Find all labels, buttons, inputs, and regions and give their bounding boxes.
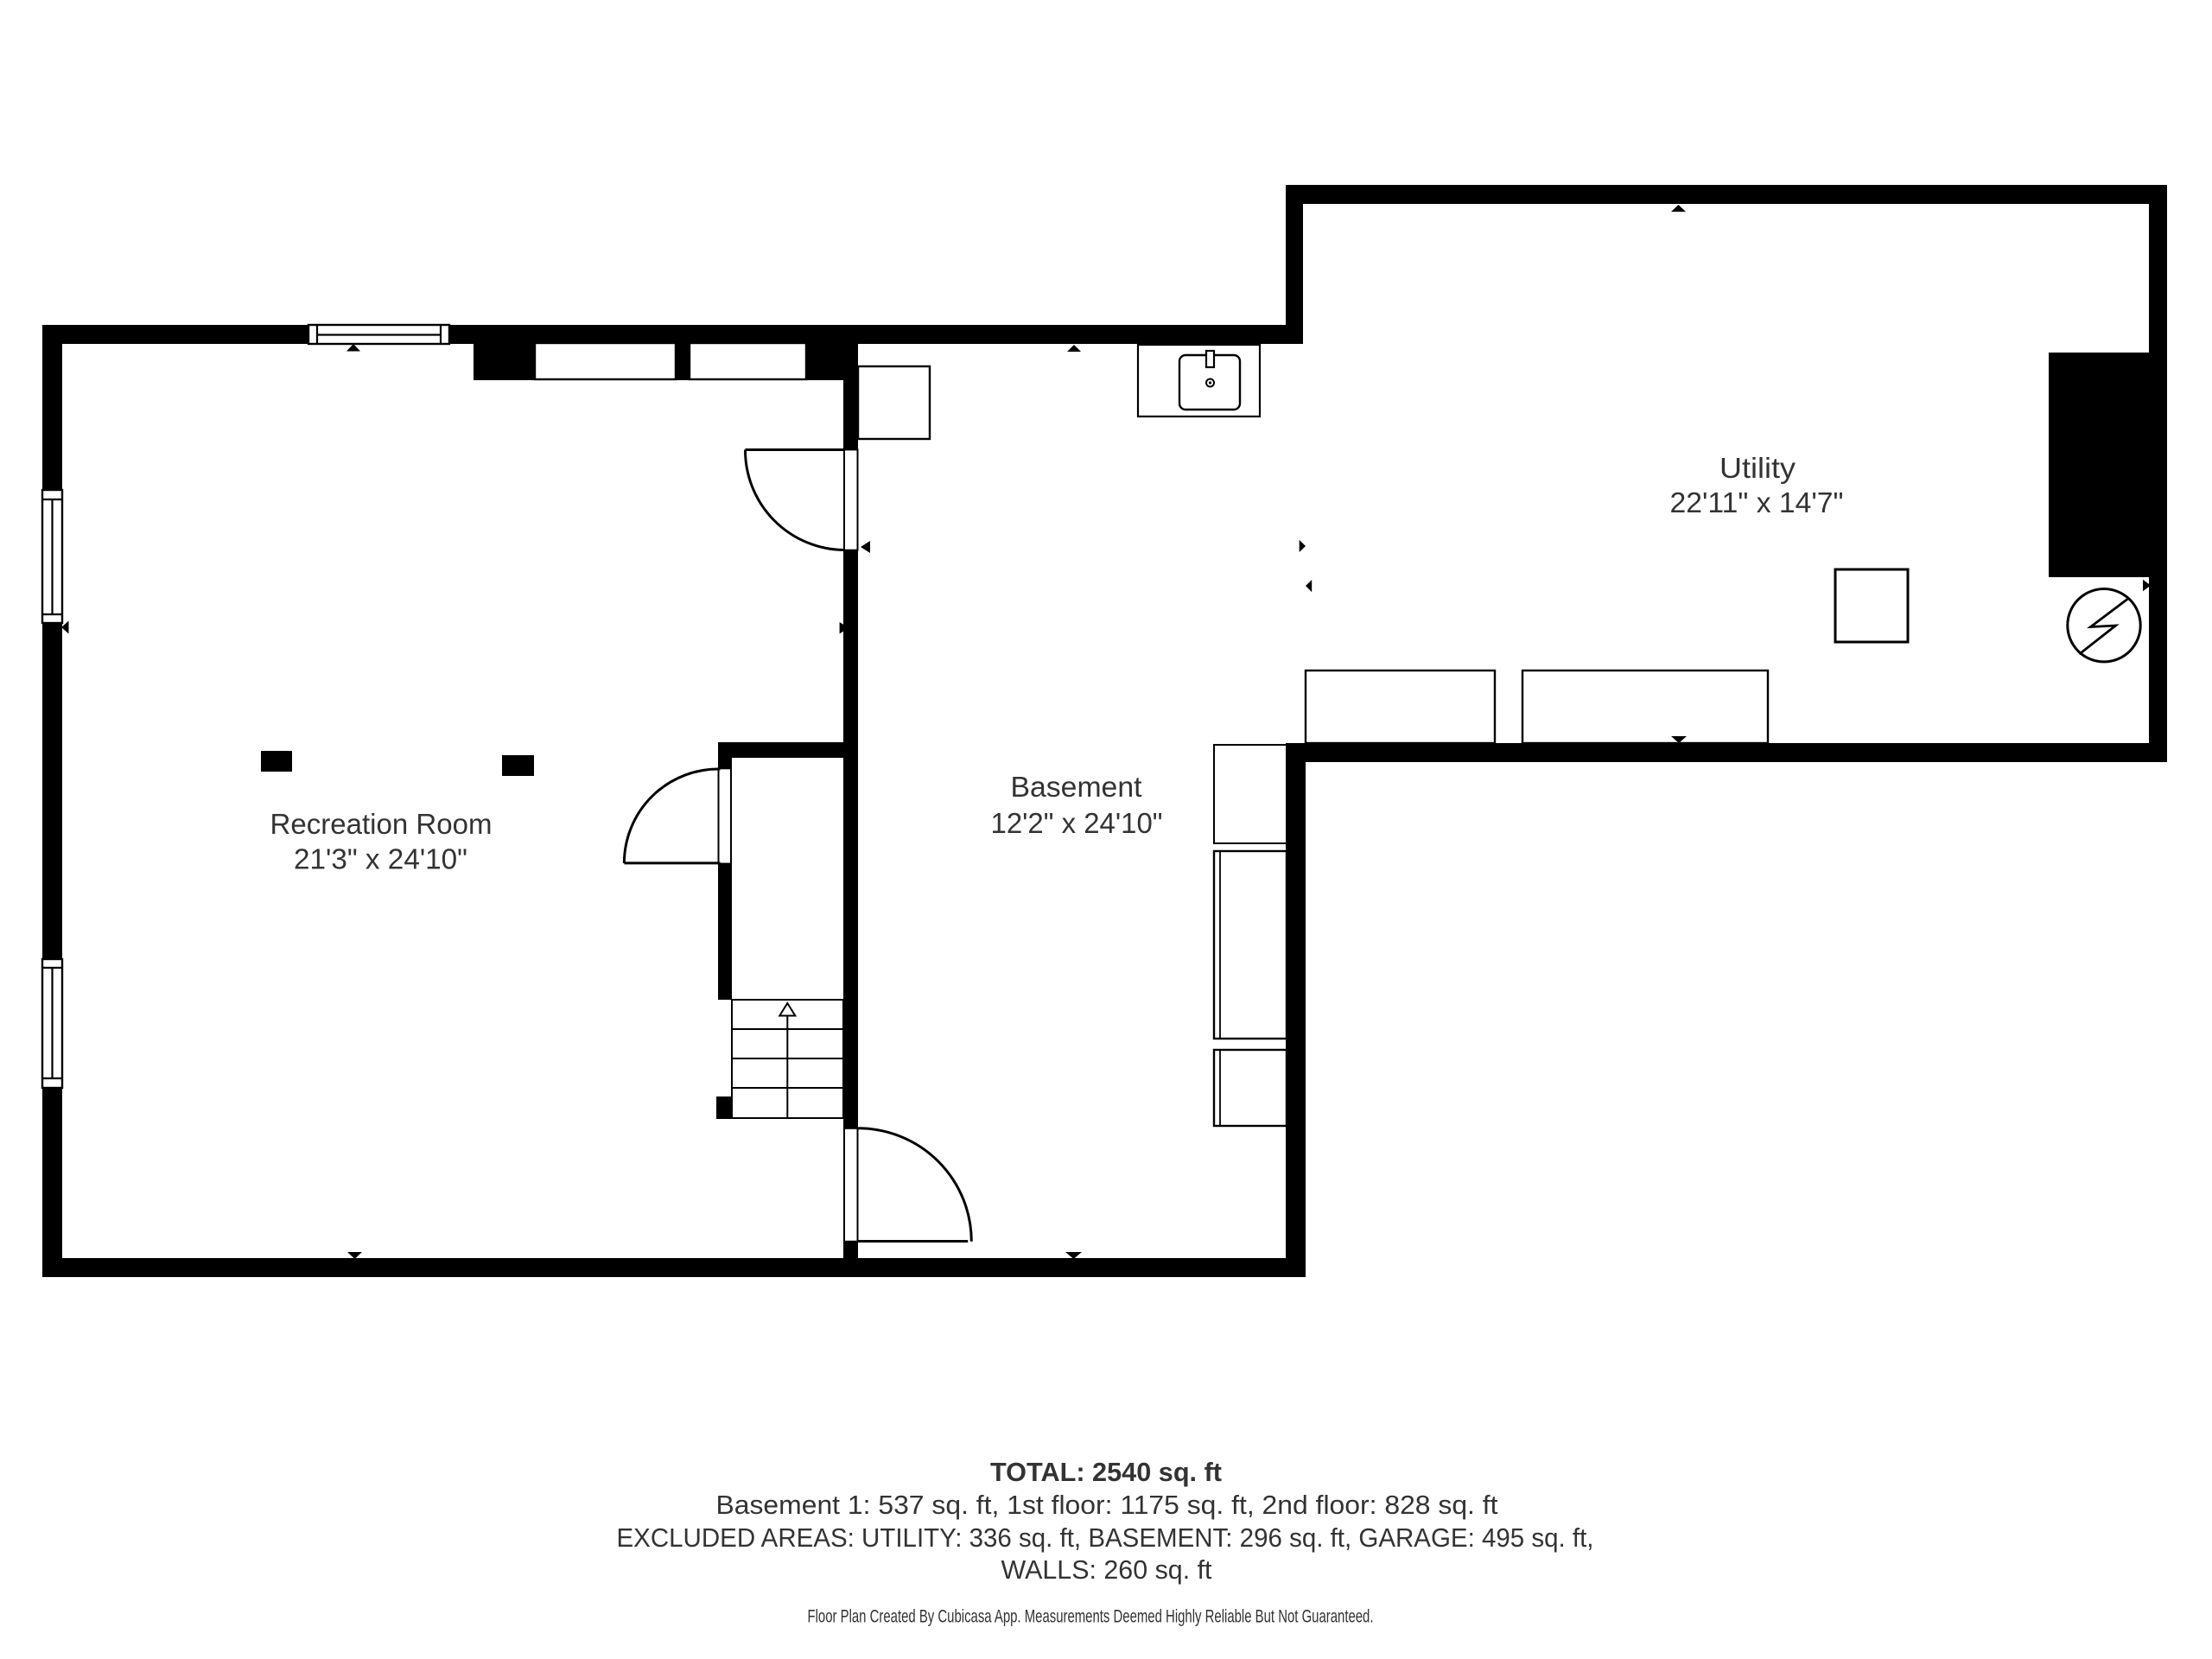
svg-text:TOTAL: 2540 sq. ft: TOTAL: 2540 sq. ft	[990, 1457, 1222, 1487]
svg-text:Basement: Basement	[1011, 772, 1143, 804]
svg-text:Basement 1: 537 sq. ft, 1st fl: Basement 1: 537 sq. ft, 1st floor: 1175 …	[716, 1490, 1498, 1520]
svg-text:EXCLUDED AREAS: UTILITY: 336 s: EXCLUDED AREAS: UTILITY: 336 sq. ft, BAS…	[617, 1522, 1594, 1553]
svg-text:22'11" x 14'7": 22'11" x 14'7"	[1670, 487, 1844, 519]
svg-text:12'2" x 24'10": 12'2" x 24'10"	[991, 808, 1163, 840]
svg-text:21'3" x 24'10": 21'3" x 24'10"	[294, 844, 467, 876]
svg-text:Utility: Utility	[1719, 453, 1796, 485]
svg-text:Recreation Room: Recreation Room	[270, 809, 493, 841]
svg-text:WALLS: 260 sq. ft: WALLS: 260 sq. ft	[1001, 1554, 1212, 1585]
svg-text:Floor Plan Created By Cubicasa: Floor Plan Created By Cubicasa App. Meas…	[808, 1607, 1374, 1627]
